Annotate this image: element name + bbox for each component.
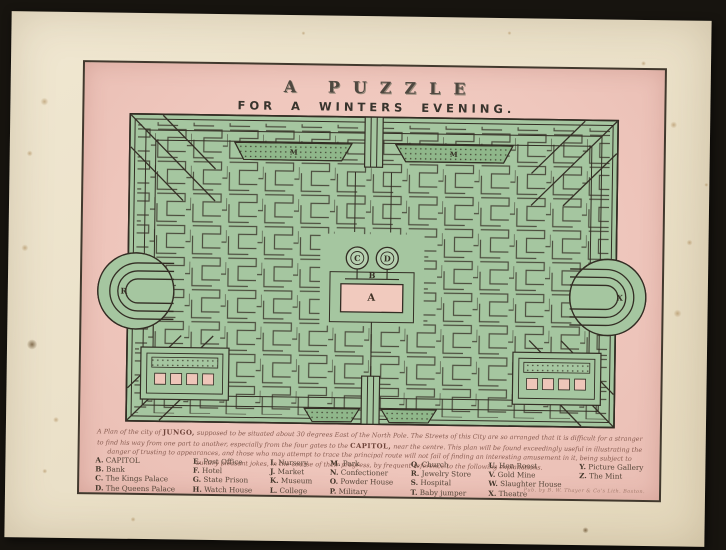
west-gate [97,252,174,329]
caption-capitol-name: CAPITOL, [350,442,391,451]
legend-letter: E. [193,457,201,466]
legend-entry: L. College [270,485,313,495]
legend-entry: Z. The Mint [579,471,643,481]
legend-entry: H. Watch House [193,484,253,494]
southeast-compound [512,352,601,405]
legend-name: Gold Mine [498,470,536,480]
legend-name: Watch House [204,485,252,495]
legend-name: Hospital [420,478,451,487]
legend-name: Bank [106,465,125,474]
foxing-spot [131,517,136,522]
legend-name: State Prison [203,475,248,485]
legend-name: College [280,486,308,495]
legend-name: Nursery [278,458,308,467]
caption-city-name: JUNGO, [163,428,195,436]
foxing-spot [27,339,37,349]
legend-letter: R. [411,469,420,478]
legend-letter: O. [330,477,338,486]
legend-entry: D. The Queens Palace [95,483,175,493]
legend-letter: K. [270,476,279,485]
foxing-spot [53,417,59,423]
legend-name: Museum [281,476,313,485]
legend-letter: G. [193,475,202,484]
foxing-spot [641,61,646,66]
legend-name: Picture Gallery [588,462,643,472]
legend-letter: S. [411,478,419,487]
legend-name: Military [339,486,368,495]
legend-letter: N. [330,468,339,477]
legend-letter: W. [488,479,498,488]
foxing-spot [507,31,511,35]
legend-letter: M. [330,459,341,468]
legend-entry: T. Baby jumper [410,487,470,497]
legend-letter: Z. [579,471,587,480]
legend-name: Post Office [203,457,242,467]
legend-letter: V. [488,470,495,479]
foxing-spot [582,527,588,533]
foxing-spot [21,244,28,251]
legend-letter: F. [193,466,200,475]
legend-letter: L. [270,485,278,494]
legend-column: A. CAPITOL B. Bank C. The Kings Palace D… [95,455,176,493]
legend-name: Confectioner [341,468,388,478]
legend-letter: I. [270,458,276,467]
foxing-spot [27,150,33,156]
legend-letter: X. [488,488,496,497]
legend-letter: Q. [411,460,420,469]
east-gate [569,259,646,336]
legend-letter: P. [330,486,337,495]
aged-paper-sheet: A PUZZLE FOR A WINTERS EVENING. A B C D … [4,11,711,547]
legend-letter: J. [270,467,275,476]
legend-letter: T. [411,487,418,496]
legend-name: CAPITOL [106,455,140,464]
legend-column: M. Park N. Confectioner O. Powder House … [330,459,394,497]
scanned-print-photo: { "print": { "title_line1": "A PUZZLE", … [0,0,726,550]
legend-name: Jewelry Store [422,469,472,479]
legend-name: Baby jumper [420,488,467,498]
legend-letter: B. [95,465,104,474]
foxing-spot [670,121,677,128]
legend-letter: H. [193,484,202,493]
legend-name: The Mint [589,471,622,480]
caption-text: A Plan of the city of [97,427,163,436]
legend-letter: U. [489,461,497,470]
legend-name: Powder House [340,477,393,487]
printed-panel: A PUZZLE FOR A WINTERS EVENING. A B C D … [77,60,667,502]
legend-column: E. Post Office F. Hotel G. State Prison … [193,457,253,495]
legend-letter: Y. [579,462,586,471]
legend-letter: A. [95,455,103,464]
southwest-compound [140,347,229,400]
legend-name: Hotel [202,466,222,475]
foxing-spot [42,469,47,474]
foxing-spot [40,98,48,106]
legend-letter: D. [95,483,104,492]
legend-column: Q. Church R. Jewelry Store S. Hospital T… [410,460,471,498]
legend-column: I. Nursery J. Market K. Museum L. Colleg… [270,458,313,495]
legend-name: The Queens Palace [106,483,175,493]
legend-letter: C. [95,474,103,483]
legend-column: Y. Picture Gallery Z. The Mint [579,462,643,481]
legend-entry: P. Military [330,486,394,496]
foxing-spot [673,309,681,317]
foxing-spot [686,240,692,246]
legend-name: Hen Roost [499,461,537,471]
foxing-spot [704,183,708,187]
legend-name: Market [278,467,305,476]
foxing-spot [301,31,305,35]
legend-name: Park [343,459,360,468]
legend-name: Church [422,460,449,469]
